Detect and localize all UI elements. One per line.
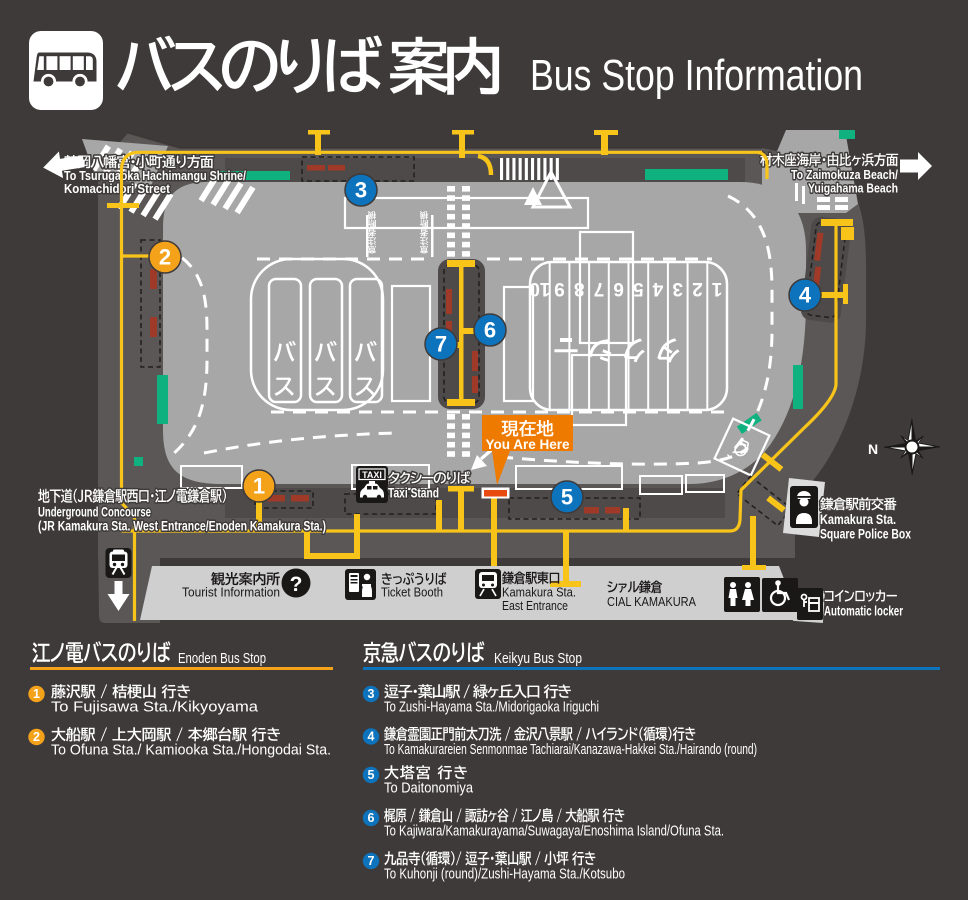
- svg-text:Yuigahama Beach: Yuigahama Beach: [808, 181, 898, 196]
- svg-text:5: 5: [633, 278, 644, 299]
- svg-text:6: 6: [368, 811, 375, 825]
- svg-text:5: 5: [368, 768, 375, 782]
- svg-text:Komachidori Street: Komachidori Street: [64, 181, 171, 196]
- svg-text:CIAL KAMAKURA: CIAL KAMAKURA: [607, 594, 696, 609]
- svg-text:(JR Kamakura Sta. West Entranc: (JR Kamakura Sta. West Entrance/Enoden K…: [38, 519, 326, 534]
- svg-text:?: ?: [290, 573, 303, 596]
- svg-text:You Are Here: You Are Here: [485, 437, 570, 452]
- svg-text:4: 4: [799, 283, 812, 308]
- svg-text:6: 6: [484, 318, 496, 343]
- svg-text:5: 5: [561, 485, 573, 510]
- svg-text:4: 4: [368, 730, 375, 744]
- svg-text:2: 2: [33, 730, 40, 744]
- svg-text:Square Police Box: Square Police Box: [820, 527, 911, 542]
- svg-text:Underground Concourse: Underground Concourse: [38, 505, 151, 520]
- svg-text:7: 7: [594, 278, 605, 299]
- svg-text:7: 7: [368, 854, 375, 868]
- svg-text:2: 2: [692, 278, 703, 299]
- svg-text:To Kamakurareien Senmonmae Tac: To Kamakurareien Senmonmae Tachiarai/Kan…: [384, 742, 757, 758]
- svg-text:Enoden Bus Stop: Enoden Bus Stop: [178, 651, 266, 667]
- svg-text:Kamakura Sta.: Kamakura Sta.: [820, 512, 896, 527]
- svg-text:2: 2: [159, 245, 171, 270]
- svg-text:N: N: [868, 441, 878, 457]
- svg-text:6: 6: [613, 278, 624, 299]
- svg-text:1: 1: [253, 474, 265, 499]
- svg-text:3: 3: [355, 178, 367, 203]
- svg-text:Tourist Information: Tourist Information: [182, 585, 280, 600]
- svg-text:7: 7: [435, 332, 447, 357]
- svg-text:Keikyu Bus Stop: Keikyu Bus Stop: [494, 651, 582, 667]
- svg-text:1: 1: [711, 278, 722, 299]
- svg-text:3: 3: [368, 687, 375, 701]
- svg-text:Ticket Booth: Ticket Booth: [381, 585, 443, 600]
- svg-text:To Kuhonji (round)/Zushi-Hayam: To Kuhonji (round)/Zushi-Hayama Sta./Kot…: [384, 867, 625, 883]
- svg-text:To Kajiwara/Kamakurayama/Suwag: To Kajiwara/Kamakurayama/Suwagaya/Enoshi…: [384, 824, 724, 840]
- svg-text:1: 1: [33, 687, 40, 701]
- svg-text:To Zushi-Hayama Sta./Midorigao: To Zushi-Hayama Sta./Midorigaoka Iriguch…: [384, 700, 599, 716]
- svg-text:To Daitonomiya: To Daitonomiya: [384, 781, 474, 797]
- svg-text:Taxi Stand: Taxi Stand: [388, 486, 439, 501]
- svg-text:TAXI: TAXI: [362, 470, 382, 480]
- svg-text:4: 4: [652, 278, 663, 299]
- svg-text:East Entrance: East Entrance: [502, 598, 568, 613]
- svg-text:9: 9: [554, 278, 565, 299]
- svg-text:To Ofuna Sta./ Kamiooka Sta./H: To Ofuna Sta./ Kamiooka Sta./Hongodai St…: [51, 743, 331, 759]
- svg-text:Automatic locker: Automatic locker: [824, 604, 904, 619]
- svg-text:3: 3: [672, 278, 683, 299]
- svg-text:To Fujisawa Sta./Kikyoyama: To Fujisawa Sta./Kikyoyama: [51, 700, 259, 716]
- svg-text:Bus Stop Information: Bus Stop Information: [530, 51, 863, 100]
